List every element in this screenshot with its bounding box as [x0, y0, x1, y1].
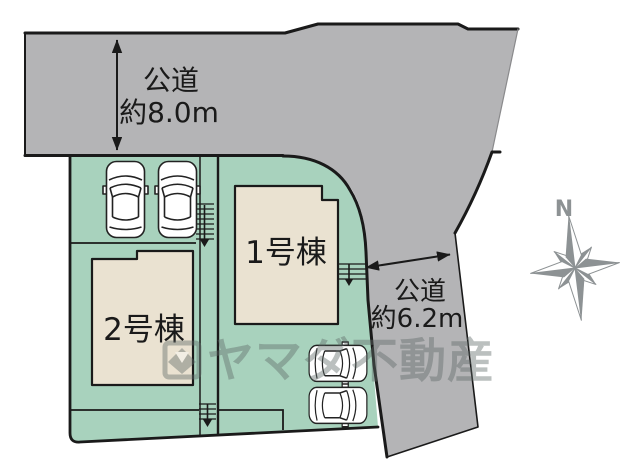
- site-plan-diagram: N 公道 約8.0m 公道 約6.2m 1号棟 2号棟 ヤマダ不動産: [0, 0, 640, 472]
- watermark: ヤマダ不動産: [165, 334, 495, 389]
- car-icon: [155, 162, 200, 238]
- road-top-width-label: 約8.0m: [119, 96, 219, 129]
- road-right-label: 公道: [394, 277, 446, 307]
- compass-north-label: N: [555, 197, 573, 222]
- car-icon: [103, 162, 148, 238]
- watermark-text: ヤマダ不動産: [207, 334, 495, 389]
- building-1-label: 1号棟: [245, 235, 327, 271]
- road-right-width-label: 約6.2m: [371, 304, 464, 334]
- compass-icon: [524, 210, 626, 326]
- car-icon: [309, 384, 367, 427]
- road-top-label: 公道: [143, 64, 199, 97]
